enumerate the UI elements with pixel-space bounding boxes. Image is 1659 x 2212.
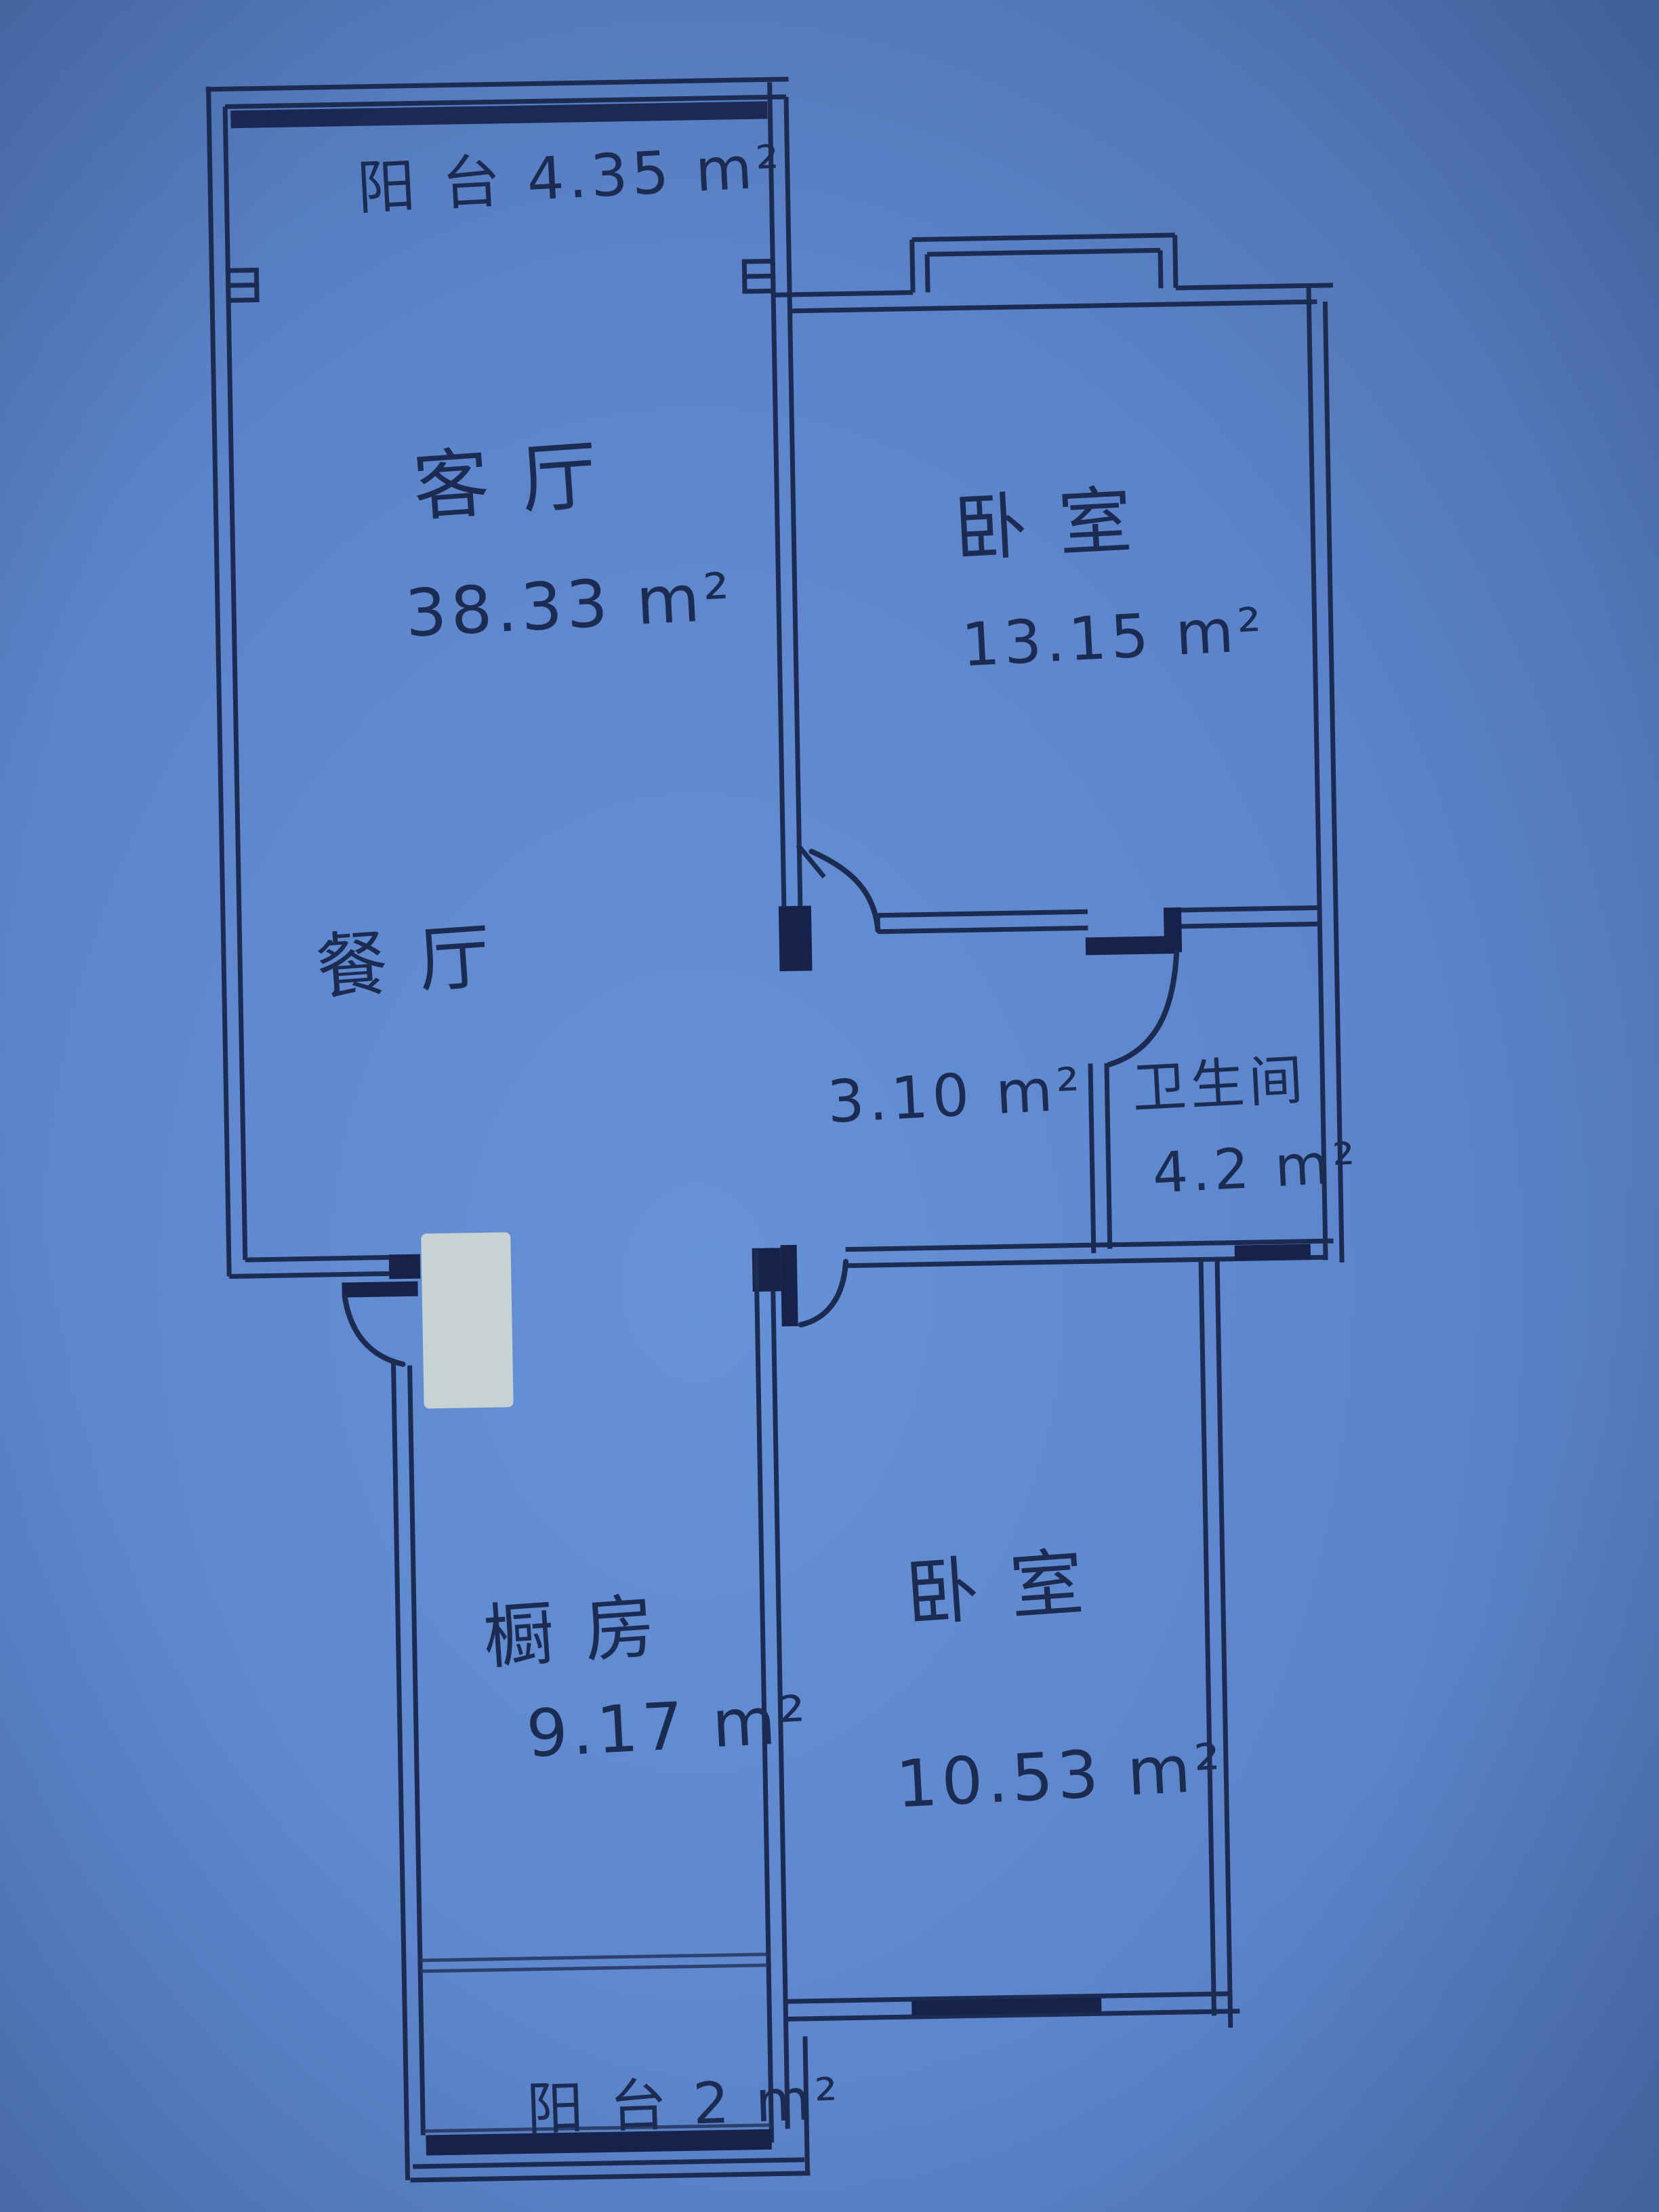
correction-fluid-patch (421, 1232, 513, 1408)
bedroom-south-door-leaf (781, 1245, 798, 1326)
room-label-bathroom-area: 4.2 m² (1151, 1131, 1361, 1206)
room-label-dining-name: 餐 厅 (313, 914, 497, 1010)
photo-of-floor-plan: 阳 台 4.35 m² 客 厅 38.33 m² 卧 室 13.15 m² 餐 … (0, 0, 1659, 2212)
room-label-living-name: 客 厅 (410, 431, 604, 532)
bathroom-door-leaf (1086, 936, 1174, 955)
floor-plan: 阳 台 4.35 m² 客 厅 38.33 m² 卧 室 13.15 m² 餐 … (0, 0, 1659, 2212)
room-label-hallway-area: 3.10 m² (825, 1055, 1086, 1136)
bathroom-bottom-window-band (1235, 1244, 1311, 1261)
room-label-balcony-bottom: 阳 台 2 m² (526, 2066, 843, 2143)
room-label-bedroom-south-name: 卧 室 (903, 1540, 1090, 1637)
room-label-kitchen-name: 橱 房 (480, 1584, 661, 1679)
entrance-door-jamb (389, 1254, 421, 1279)
room-label-kitchen-area: 9.17 m² (525, 1681, 812, 1772)
room-label-bathroom-name: 卫生间 (1130, 1048, 1309, 1120)
bedroom-north-door-jamb (779, 905, 813, 971)
room-label-bedroom-north-name: 卧 室 (952, 478, 1139, 573)
entrance-door-leaf (342, 1282, 417, 1298)
